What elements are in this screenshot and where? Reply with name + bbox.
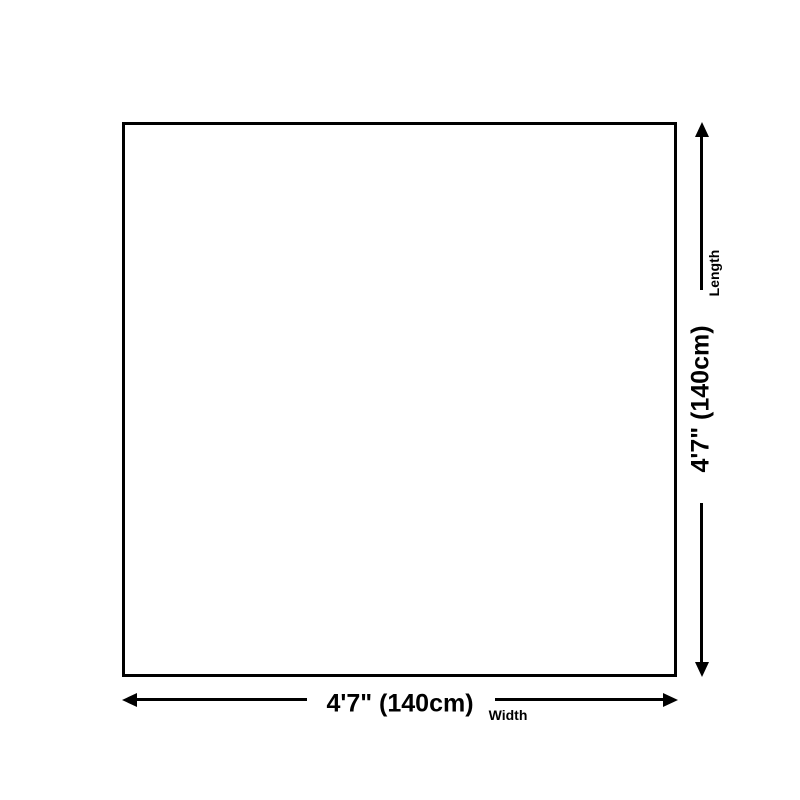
product-outline-square [122,122,677,677]
length-dimension-line-bottom [700,503,703,662]
width-dimension-line-left [137,698,307,701]
arrow-down-icon [695,662,709,677]
length-dimension-value: 4'7" (140cm) [687,325,716,472]
arrow-right-icon [663,693,678,707]
width-axis-label: Width [489,707,528,723]
width-dimension-value: 4'7" (140cm) [326,690,473,719]
dimension-diagram: Length 4'7" (140cm) 4'7" (140cm) Width [0,0,800,800]
length-axis-label: Length [706,250,722,297]
length-dimension-line-top [700,135,703,290]
width-dimension-line-right [495,698,663,701]
arrow-left-icon [122,693,137,707]
